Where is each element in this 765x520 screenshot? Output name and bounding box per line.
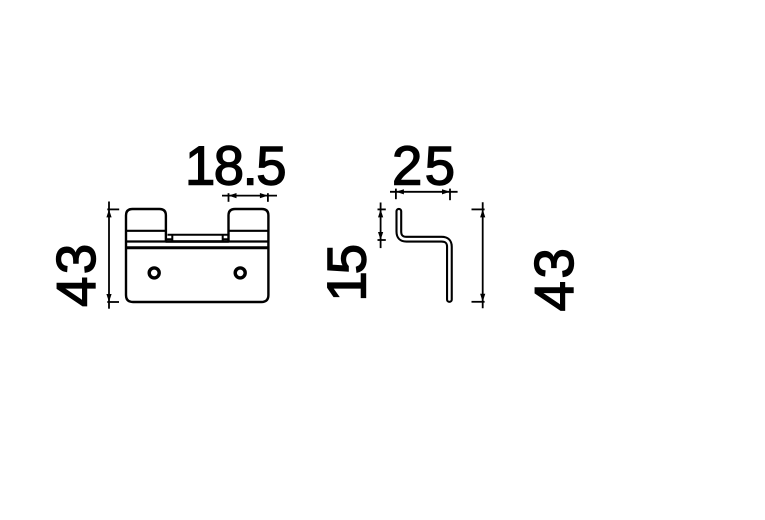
svg-text:43: 43 <box>46 241 107 307</box>
svg-text:43: 43 <box>524 246 585 312</box>
svg-text:18.5: 18.5 <box>185 136 285 197</box>
svg-text:15: 15 <box>317 245 378 301</box>
svg-text:25: 25 <box>392 135 458 196</box>
